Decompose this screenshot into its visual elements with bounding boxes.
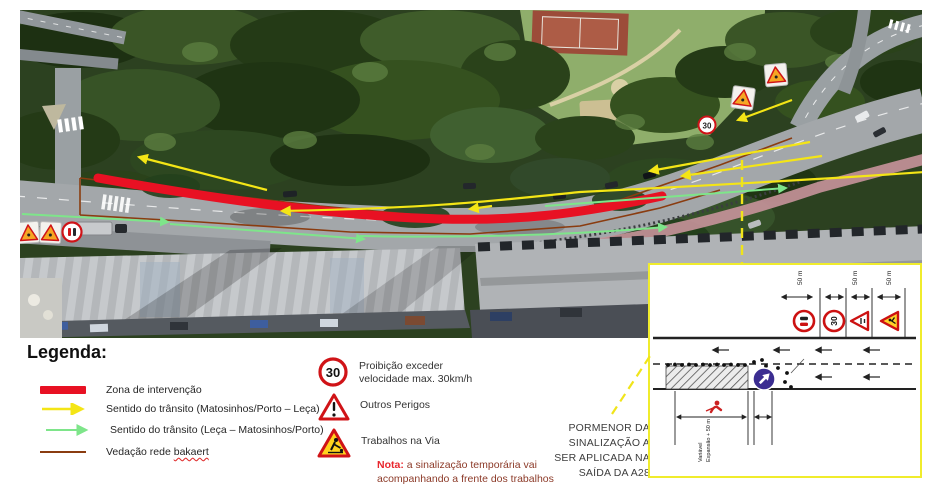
- no-overtaking-icon: [63, 223, 82, 242]
- legend-item-yellow-direction: Sentido do trânsito (Matosinhos/Porto – …: [40, 403, 320, 415]
- legend-item-green-direction: Sentido do trânsito (Leça – Matosinhos/P…: [40, 424, 324, 436]
- svg-text:50 m: 50 m: [852, 271, 859, 285]
- road-works-icon: [764, 63, 788, 87]
- brown-line-swatch: [40, 451, 86, 453]
- svg-text:30: 30: [703, 122, 712, 131]
- work-zone-hatched: [666, 366, 748, 389]
- road-works-icon: [39, 221, 61, 243]
- worker-icon: [706, 401, 721, 412]
- no-overtaking-icon: [794, 311, 814, 331]
- speed-limit-30-icon: 30: [824, 311, 844, 331]
- legend-title: Legenda:: [27, 342, 107, 363]
- red-band-swatch: [40, 386, 86, 394]
- road-works-icon: [317, 427, 351, 459]
- yellow-arrow-swatch: [40, 403, 92, 415]
- sign-key-works: Trabalhos na Via: [317, 427, 440, 459]
- misspelled-word: bakaert: [174, 446, 209, 458]
- road-works-icon: [881, 312, 898, 330]
- taper-pointer-line: [791, 359, 804, 373]
- dimension-lines: [675, 391, 772, 445]
- svg-text:30: 30: [829, 316, 839, 326]
- signage-detail-inset: 50 m 50 m 50 m 30: [648, 263, 922, 478]
- sign-key-danger: Outros Perigos: [318, 392, 430, 422]
- legend-item-intervention: Zona de intervenção: [40, 384, 202, 396]
- speed-limit-30-icon: 30: [699, 117, 716, 134]
- inset-callout-label: PORMENOR DA SINALIZAÇÃO A SER APLICADA N…: [540, 421, 650, 481]
- distance-labels: 50 m 50 m 50 m: [797, 271, 893, 285]
- svg-text:Variável: Variável: [698, 443, 704, 462]
- legend-item-fence: Vedação rede bakaert: [40, 446, 209, 458]
- inset-leader-line-diagonal: [612, 356, 650, 414]
- work-zone-length-labels: Variável Expansão + 50 m: [698, 419, 712, 462]
- sign-key-speed: 30 Proibição exceder velocidade max. 30k…: [317, 356, 472, 388]
- signage-detail-diagram: 50 m 50 m 50 m 30: [650, 265, 919, 475]
- svg-text:50 m: 50 m: [886, 271, 893, 285]
- mandatory-direction-icon: [753, 368, 775, 390]
- signage-plan-page: 30 Legenda: Zona de intervenção Sentido …: [0, 0, 946, 494]
- other-dangers-icon: [318, 392, 350, 422]
- road-works-icon: [731, 86, 756, 111]
- road-works-icon: [20, 221, 40, 243]
- svg-text:Expansão + 50 m: Expansão + 50 m: [706, 419, 712, 462]
- svg-text:30: 30: [326, 365, 340, 380]
- left-signs-group: [20, 221, 81, 243]
- lane-narrowing-icon: [851, 312, 868, 330]
- speed-limit-30-icon: 30: [317, 356, 349, 388]
- svg-text:50 m: 50 m: [797, 271, 804, 285]
- green-arrow-swatch: [44, 424, 96, 436]
